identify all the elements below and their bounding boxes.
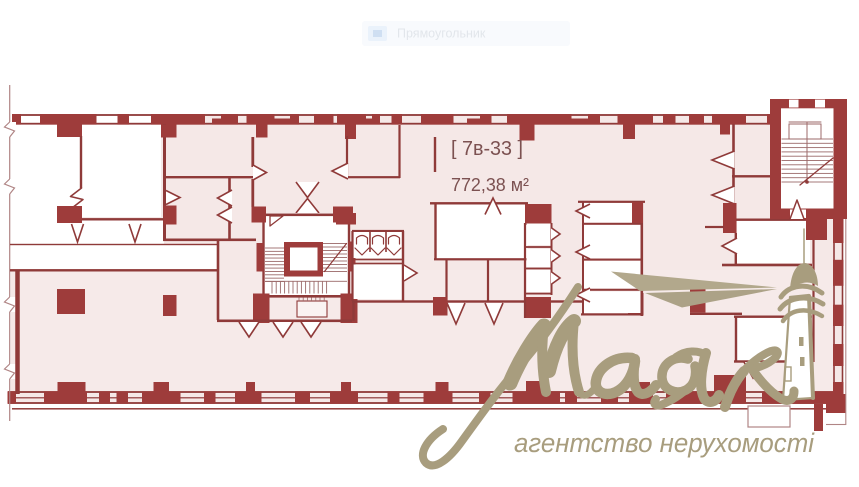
svg-text:[ 7в-33 ]: [ 7в-33 ] bbox=[451, 137, 523, 160]
svg-text:772,38 м²: 772,38 м² bbox=[451, 174, 529, 195]
svg-text:Прямоугольник: Прямоугольник bbox=[397, 27, 486, 41]
svg-text:агентство нерухомості: агентство нерухомості bbox=[514, 428, 815, 458]
